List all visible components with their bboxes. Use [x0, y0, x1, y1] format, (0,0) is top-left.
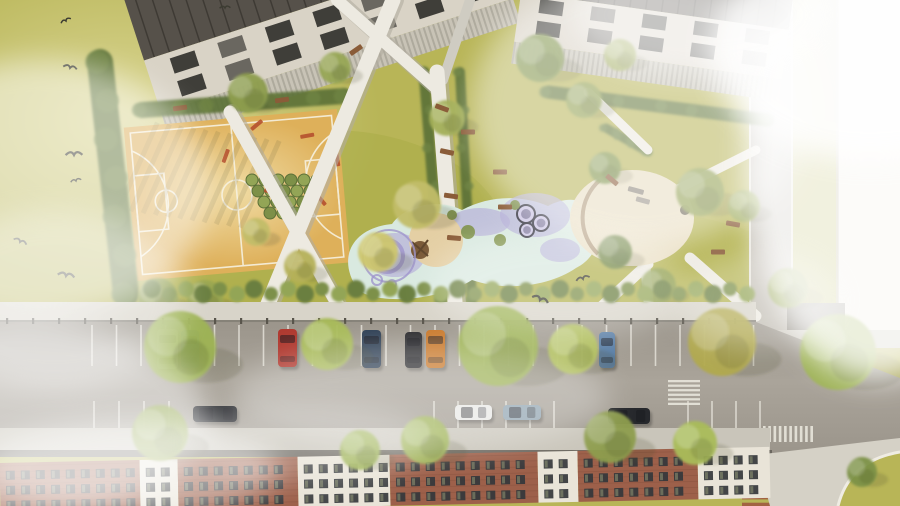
- facade-window-reflection: [615, 474, 618, 481]
- facade-window-reflection: [487, 462, 490, 469]
- facade-window-reflection: [585, 460, 588, 467]
- fence-post: [240, 318, 242, 324]
- crosswalk-stripe: [774, 426, 777, 442]
- facade-window-reflection: [412, 463, 415, 470]
- facade-window-reflection: [380, 479, 383, 486]
- fence-post: [370, 318, 372, 324]
- crosswalk-stripe: [668, 389, 700, 391]
- street-bush: [366, 287, 380, 301]
- crosswalk-stripe: [784, 426, 787, 442]
- car-windshield: [601, 338, 613, 346]
- tree-shade: [244, 89, 264, 109]
- street-bush: [213, 282, 227, 296]
- facade-window-reflection: [705, 472, 708, 479]
- facade-window-reflection: [457, 462, 460, 469]
- facade-window-reflection: [472, 492, 475, 499]
- crosswalk-stripe: [668, 385, 700, 387]
- fog-patch: [680, 250, 840, 350]
- facade-window-reflection: [750, 471, 753, 478]
- street-bush: [398, 285, 416, 303]
- facade-window-reflection: [615, 489, 618, 496]
- fence-post: [448, 318, 450, 324]
- facade-window-reflection: [320, 495, 323, 502]
- facade-window-reflection: [365, 479, 368, 486]
- crosswalk-stripe: [810, 426, 813, 442]
- facade-window-reflection: [472, 462, 475, 469]
- facade-window-reflection: [735, 472, 738, 479]
- shrub: [291, 185, 303, 197]
- park-bench: [498, 205, 512, 210]
- car-windshield: [364, 336, 379, 344]
- tree-shade: [412, 200, 436, 224]
- facade-window-reflection: [442, 493, 445, 500]
- facade-window-reflection: [675, 458, 678, 465]
- crosswalk-stripe: [668, 398, 700, 400]
- street-bush: [194, 285, 212, 303]
- fence-post: [344, 318, 346, 324]
- crosswalk-stripe: [800, 426, 803, 442]
- facade-window-reflection: [560, 475, 563, 482]
- facade-window-reflection: [350, 495, 353, 502]
- facade-window-reflection: [442, 478, 445, 485]
- facade-window-reflection: [457, 477, 460, 484]
- shrub: [298, 174, 310, 186]
- facade-window-reflection: [397, 479, 400, 486]
- crosswalk-stripe: [668, 394, 700, 396]
- tree-shade: [605, 431, 631, 457]
- facade-window-reflection: [660, 458, 663, 465]
- tree-shade: [691, 438, 713, 460]
- fence-post: [682, 318, 684, 324]
- tree-shade: [374, 248, 394, 268]
- street-bush: [417, 282, 431, 296]
- car-rear-window: [636, 410, 645, 422]
- car-windshield: [428, 336, 443, 344]
- aerial-courtyard-render: Aerial architectural rendering of reside…: [0, 0, 900, 506]
- park-bench: [711, 250, 725, 255]
- facade-window-reflection: [517, 461, 520, 468]
- crosswalk-stripe: [668, 380, 700, 382]
- crosswalk-stripe: [789, 426, 792, 442]
- fence-post: [396, 318, 398, 324]
- tree-shade: [443, 114, 461, 132]
- facade-window-reflection: [645, 488, 648, 495]
- facade-window-reflection: [600, 489, 603, 496]
- facade-window-reflection: [472, 477, 475, 484]
- facade-window-reflection: [660, 488, 663, 495]
- facade-window-reflection: [600, 474, 603, 481]
- facade-window-reflection: [545, 475, 548, 482]
- facade-window-reflection: [735, 486, 738, 493]
- facade-window-reflection: [720, 472, 723, 479]
- street-bush: [382, 281, 398, 297]
- street-bush: [315, 282, 329, 296]
- hedge-bush: [199, 98, 213, 112]
- facade-window-reflection: [560, 460, 563, 467]
- facade-window-reflection: [720, 487, 723, 494]
- crosswalk-stripe: [779, 426, 782, 442]
- shrub: [246, 174, 258, 186]
- street-bush: [229, 286, 245, 302]
- crosswalk-stripe: [795, 426, 798, 442]
- facade-window-reflection: [585, 475, 588, 482]
- facade-window-reflection: [305, 496, 308, 503]
- facade-window-reflection: [365, 494, 368, 501]
- crosswalk-stripe: [668, 403, 700, 405]
- hedge-bush: [457, 144, 466, 153]
- hedge-bush: [422, 143, 432, 153]
- tree-shade: [253, 229, 267, 243]
- facade-window-reflection: [487, 477, 490, 484]
- fence-post: [292, 318, 294, 324]
- shrub: [264, 207, 276, 219]
- hedge-bush: [453, 68, 462, 77]
- facade-window-reflection: [412, 493, 415, 500]
- facade-window-reflection: [502, 461, 505, 468]
- shrub: [252, 185, 264, 197]
- facade-window-reflection: [735, 457, 738, 464]
- hedge-bush: [465, 182, 474, 191]
- facade-window-reflection: [427, 478, 430, 485]
- facade-window-reflection: [350, 480, 353, 487]
- street-bush: [245, 280, 263, 298]
- facade-window-reflection: [545, 490, 548, 497]
- facade-window-reflection: [335, 495, 338, 502]
- facade-window-reflection: [630, 489, 633, 496]
- shrub: [258, 196, 270, 208]
- hedge-bush: [306, 91, 320, 105]
- facade-window-reflection: [585, 490, 588, 497]
- facade-window-reflection: [457, 492, 460, 499]
- facade-window-reflection: [675, 488, 678, 495]
- street-bush: [347, 280, 365, 298]
- facade-window-reflection: [705, 487, 708, 494]
- facade-window-reflection: [275, 496, 278, 503]
- facade-window-reflection: [517, 491, 520, 498]
- street-bush: [296, 285, 314, 303]
- facade-window-reflection: [427, 493, 430, 500]
- car-windshield: [280, 335, 295, 343]
- facade-window-reflection: [397, 494, 400, 501]
- planting-tuft: [461, 225, 475, 239]
- tree-shade: [859, 469, 874, 484]
- facade-window-reflection: [487, 492, 490, 499]
- tree-shade: [568, 344, 593, 369]
- crosswalk-stripe: [805, 426, 808, 442]
- facade-window-reflection: [427, 463, 430, 470]
- fence-post: [422, 318, 424, 324]
- shrub: [285, 174, 297, 186]
- tree-shade: [297, 262, 313, 278]
- facade-window-reflection: [502, 476, 505, 483]
- fence-post: [266, 318, 268, 324]
- street-bush: [331, 286, 347, 302]
- facade-window-reflection: [645, 473, 648, 480]
- facade-window-reflection: [560, 490, 563, 497]
- facade-window-reflection: [260, 496, 263, 503]
- facade-window-reflection: [517, 476, 520, 483]
- facade-window-reflection: [412, 478, 415, 485]
- tree-shade: [332, 64, 348, 80]
- facade-window-reflection: [675, 473, 678, 480]
- facade-window-reflection: [660, 473, 663, 480]
- facade-white-section: [537, 451, 578, 503]
- facade-window-reflection: [545, 460, 548, 467]
- facade-window-reflection: [750, 456, 753, 463]
- fence-post: [214, 318, 216, 324]
- facade-window-reflection: [630, 474, 633, 481]
- facade-window-reflection: [380, 494, 383, 501]
- facade-window-reflection: [750, 486, 753, 493]
- fog-patch: [430, 230, 690, 340]
- scene-svg: [0, 0, 900, 506]
- street-bush: [264, 287, 278, 301]
- facade-window-reflection: [502, 491, 505, 498]
- fog-patch: [190, 402, 430, 482]
- street-bush: [280, 281, 296, 297]
- facade-window-reflection: [275, 481, 278, 488]
